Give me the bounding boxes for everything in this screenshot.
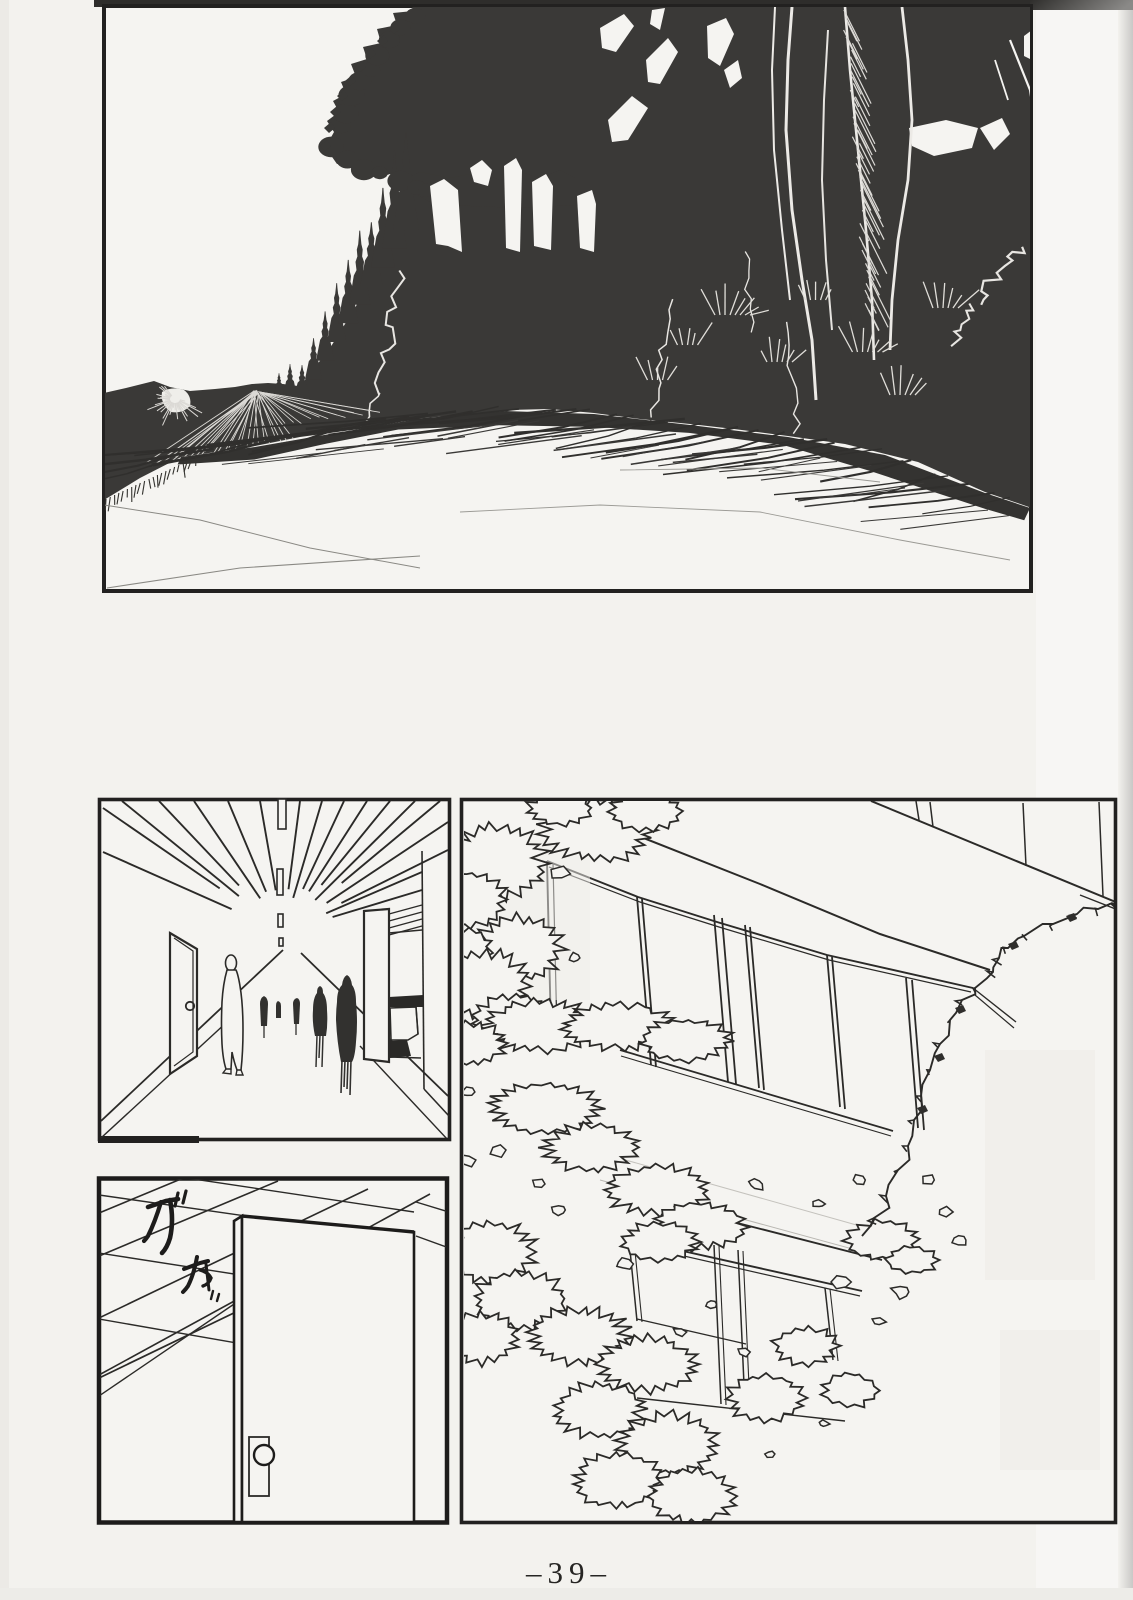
svg-text:–39–: –39–	[525, 1555, 612, 1590]
